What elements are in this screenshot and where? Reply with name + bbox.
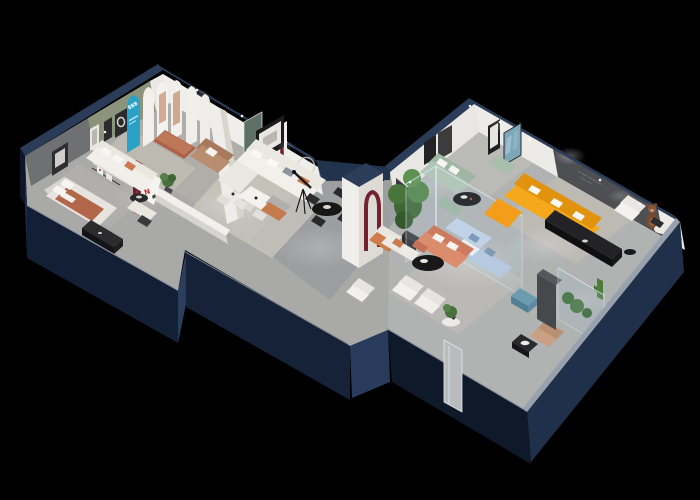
coffee-table-upper-tray [136, 196, 142, 199]
side-table-dark-tray [521, 341, 530, 345]
bear-ear-2 [654, 203, 657, 206]
wall-glow-4 [608, 189, 632, 203]
frame-white-inner [92, 128, 97, 146]
plant-upper-leaf-2 [160, 173, 168, 181]
cap-west-outer [20, 149, 25, 204]
downlight-2 [241, 115, 244, 118]
downlight-9 [104, 131, 107, 134]
arch-poster-photo-2 [173, 90, 180, 126]
console-decor [98, 232, 102, 234]
floorplan-svg: 888— —— ——— ———— ——N [0, 0, 700, 500]
side-plant-leaf-2 [443, 304, 451, 312]
plant-big-leaf-2 [388, 184, 408, 204]
render-viewport: 888— —— ——— ———— ——N [0, 0, 700, 500]
mirror-panel [444, 340, 462, 412]
coffee-black-bottom [412, 255, 444, 271]
arch-poster-photo-1 [159, 91, 166, 124]
downlight-8 [639, 203, 642, 206]
downlight-4 [469, 105, 472, 108]
plant-upper-leaf-3 [168, 174, 176, 182]
wall-glow-3 [488, 119, 512, 133]
wall-glow-2 [277, 140, 295, 152]
dining-white-decor [255, 197, 258, 200]
side-plant-table [442, 318, 460, 327]
arch-display-1 [143, 87, 154, 147]
side-table-vase [232, 193, 235, 196]
wall-glow-1 [190, 89, 210, 101]
side-table-black-right [624, 249, 636, 255]
coffee-black-bottom-tray [420, 259, 428, 263]
dining-black-tray [323, 205, 331, 209]
bear-muzzle [650, 209, 654, 211]
shelf-red-dot [99, 169, 101, 171]
pillar-face-left [342, 177, 359, 268]
downlight-6 [529, 139, 532, 142]
telescope-head [292, 170, 296, 174]
bear-ear-1 [647, 203, 650, 206]
scene-root: 888— —— ——— ———— ——N [20, 64, 685, 464]
downlight-10 [409, 181, 412, 184]
tv-console-item [582, 240, 588, 243]
